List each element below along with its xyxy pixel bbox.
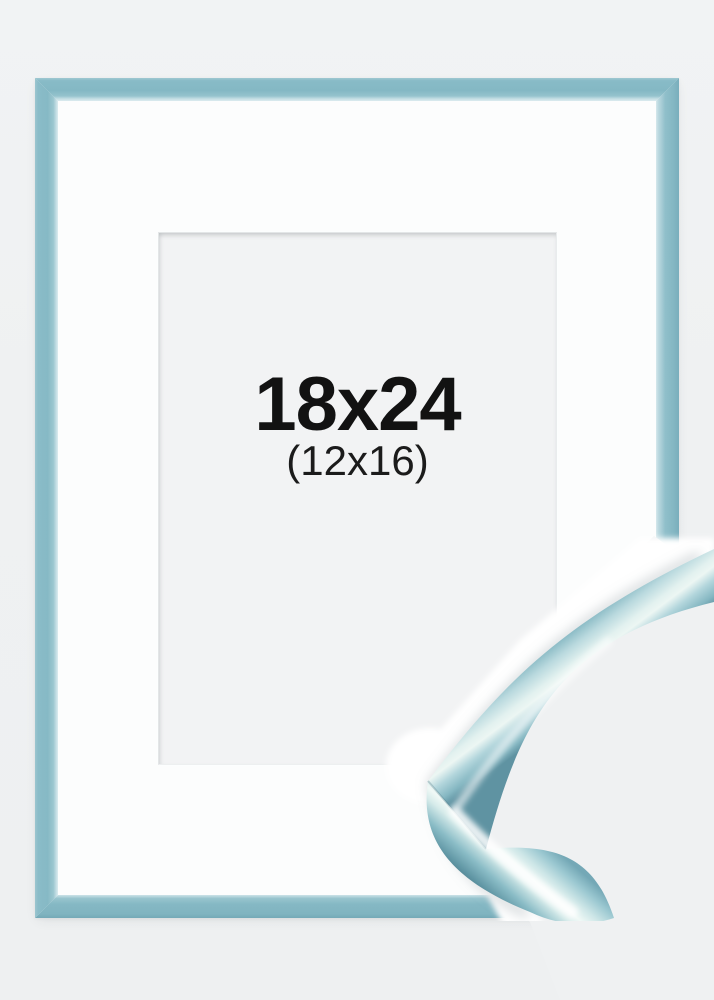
inner-size-label: (12x16) — [159, 440, 556, 482]
frame-edge-left — [35, 78, 58, 918]
frame-edge-right — [656, 78, 679, 918]
picture-opening: 18x24 (12x16) — [158, 232, 557, 765]
picture-frame: 18x24 (12x16) — [35, 78, 679, 918]
frame-edge-top — [35, 78, 679, 101]
product-image: 18x24 (12x16) — [0, 0, 714, 1000]
size-label: 18x24 — [159, 367, 556, 443]
frame-edge-bottom — [35, 895, 679, 918]
